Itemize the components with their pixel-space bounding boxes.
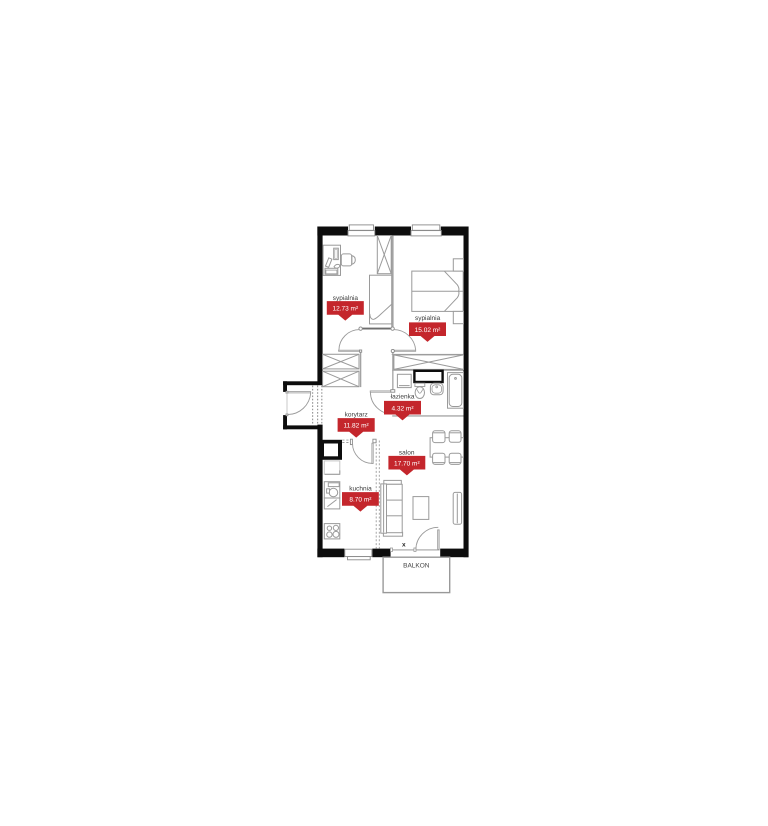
svg-text:łazienka: łazienka: [391, 394, 415, 401]
svg-text:x: x: [402, 542, 406, 549]
svg-text:sypialnia: sypialnia: [415, 315, 441, 322]
svg-text:11.82 m²: 11.82 m²: [344, 423, 370, 430]
svg-text:4.32 m²: 4.32 m²: [391, 406, 414, 413]
svg-text:kuchnia: kuchnia: [349, 486, 372, 493]
svg-text:8.70 m²: 8.70 m²: [349, 497, 372, 504]
svg-text:17.70 m²: 17.70 m²: [394, 461, 420, 468]
svg-text:korytarz: korytarz: [345, 411, 368, 418]
svg-text:BALKON: BALKON: [403, 563, 430, 570]
svg-text:salon: salon: [399, 449, 415, 456]
svg-text:sypialnia: sypialnia: [333, 295, 359, 302]
svg-text:12.73 m²: 12.73 m²: [332, 306, 358, 313]
svg-text:15.02 m²: 15.02 m²: [415, 327, 441, 334]
